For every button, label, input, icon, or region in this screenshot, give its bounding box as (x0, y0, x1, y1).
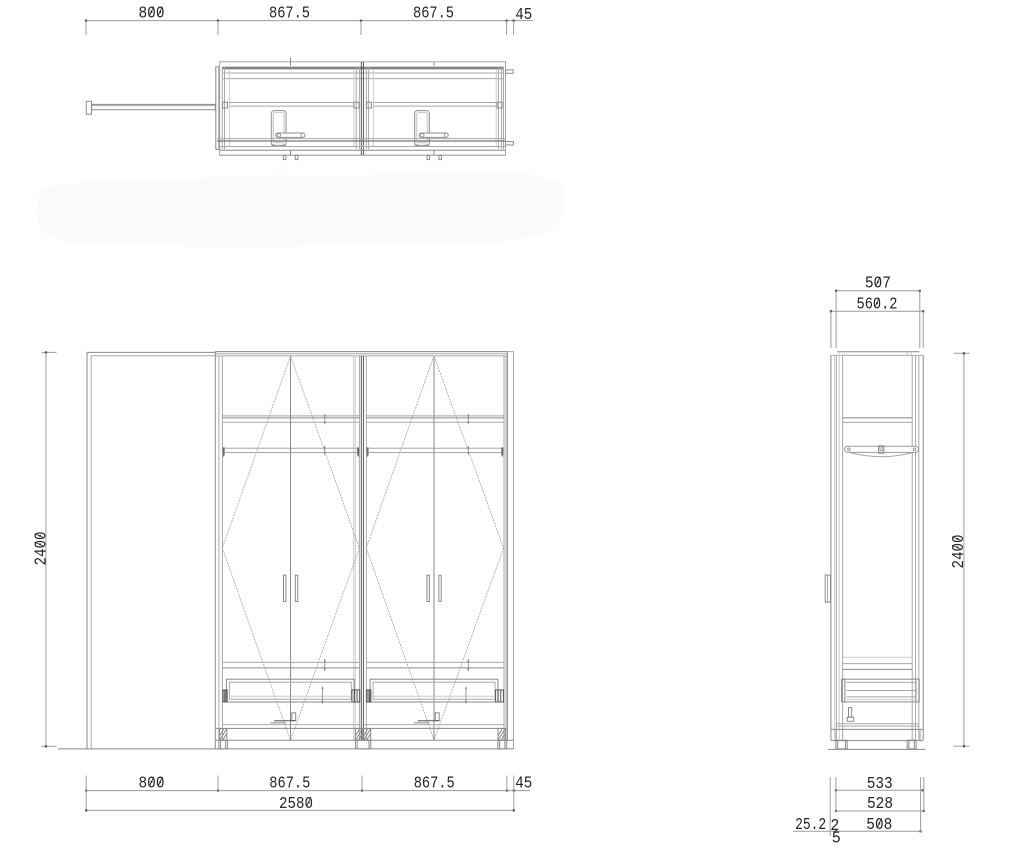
svg-text:508: 508 (866, 816, 892, 835)
svg-text:867.5: 867.5 (413, 4, 454, 23)
svg-text:560.2: 560.2 (857, 296, 898, 315)
svg-text:25.2: 25.2 (795, 816, 826, 835)
svg-text:800: 800 (139, 4, 165, 23)
svg-text:45: 45 (515, 6, 532, 25)
svg-text:507: 507 (865, 275, 891, 294)
svg-text:800: 800 (139, 775, 165, 794)
svg-text:528: 528 (867, 795, 893, 814)
svg-text:5: 5 (832, 829, 841, 848)
svg-text:533: 533 (867, 775, 893, 794)
svg-text:867.5: 867.5 (414, 775, 455, 794)
svg-text:45: 45 (515, 775, 532, 794)
svg-text:867.5: 867.5 (269, 775, 310, 794)
svg-text:867.5: 867.5 (269, 4, 310, 23)
